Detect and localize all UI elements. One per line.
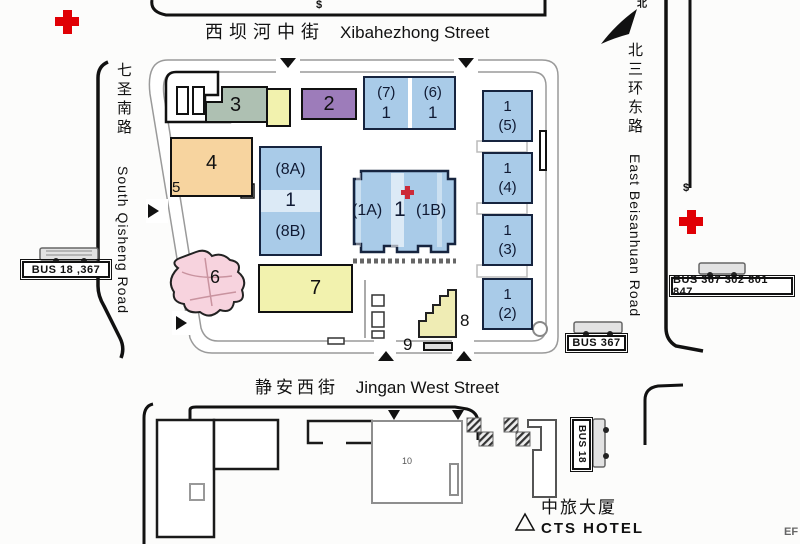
street-label-right-en: East Beisanhuan Road [628,154,642,317]
hotel-name-en: CTS HOTEL [541,521,644,536]
street-label-left-cn: 七圣南路 [116,62,131,138]
bus-stop-sign-east: BUS 367 302 801 847 [671,277,793,295]
building-2: 2 [301,88,357,120]
building-1-4: 1 (4) [482,152,533,204]
block-unit: (2) [498,305,516,322]
building-8a-8b: (8A) 1 (8B) [259,146,322,256]
south-building-a [157,420,214,537]
circle-feature [533,322,547,336]
building-3-label: 3 [230,95,241,115]
tree-icon [504,418,518,432]
building-1-5: 1 (5) [482,90,533,142]
unit-6-number: 1 [428,103,437,123]
hotel-triangle-icon [516,514,534,530]
building-10-label: 10 [402,457,412,466]
stall-bar [328,338,344,344]
red-cross-icon [679,210,703,234]
gate-bar [424,343,452,350]
unit-1b-label: (1B) [416,203,446,219]
unit-8-number: 1 [261,190,320,212]
red-cross-icon [55,10,79,34]
south-building-l [528,420,556,497]
road-east-edge [666,0,703,351]
gate-arrow-icon [452,410,464,420]
bus-icon [593,419,609,467]
building-8-label: 8 [460,312,469,329]
north-arrow-icon [601,9,637,44]
building-7-6: (7) 1 (6) 1 [363,76,456,130]
street-bottom-en: Jingan West Street [356,378,499,397]
block-number: 1 [503,160,511,177]
stall-box [372,331,384,338]
south-building-b [214,420,278,469]
building-7-label: 7 [310,277,321,300]
road-southwest-edge [144,404,153,544]
building-white-slot [177,87,188,114]
building-2-label: 2 [323,93,334,116]
building-7: 7 [258,264,353,313]
north-label: 北 [637,0,647,10]
road-top-edge [152,0,545,15]
block-unit: (4) [498,179,516,196]
building-1-2: 1 (2) [482,278,533,330]
building-4-label: 4 [206,152,217,175]
corner-mark: EF [784,527,798,538]
hotel-name-cn: 中旅大厦 [541,499,617,516]
street-label-bottom: 静安西街 Jingan West Street [255,379,499,396]
building-5-label: 5 [172,180,180,195]
south-building-10-annex [450,464,458,495]
unit-8a-label: (8A) [275,161,305,179]
block-unit: (5) [498,117,516,134]
street-label-left-en: South Qisheng Road [116,166,130,314]
street-bottom-cn: 静安西街 [255,378,339,397]
street-label-right-cn: 北三环东路 [627,42,642,137]
south-building-10 [372,421,462,503]
building-connector [477,203,527,214]
bus-stop-sign-west: BUS 18 ,367 [22,261,110,278]
dollar-icon: $ [683,183,689,194]
building-connector [477,265,527,277]
bus-stop-sign-southeast: BUS 367 [567,335,626,351]
block-number: 1 [503,222,511,239]
building-9-label: 9 [403,336,412,353]
block-number: 1 [503,286,511,303]
building-6-label: 6 [210,268,220,286]
unit-6-label: (6) [424,84,442,101]
street-top-cn: 西坝河中街 [205,22,325,42]
post-bar [540,131,546,170]
building-1-3: 1 (3) [482,214,533,266]
gate-arrow-icon [388,410,400,420]
dollar-icon: $ [316,0,322,11]
street-label-top: 西坝河中街 Xibahezhong Street [205,23,489,41]
unit-7-label: (7) [377,84,395,101]
road-southeast-edge [645,385,683,445]
stall-box [372,312,384,327]
street-top-en: Xibahezhong Street [340,23,489,42]
building-connector [477,141,527,152]
tree-icon [479,432,493,446]
building-4: 4 [170,137,253,197]
south-building-a-court [190,484,204,500]
bus-stop-sign-south: BUS 18 [572,419,591,470]
unit-8b-label: (8B) [275,223,305,241]
stall-box [372,295,384,306]
building-6-shape [171,251,244,316]
unit-1a-label: (1A) [352,203,382,219]
unit-7-number: 1 [382,103,391,123]
building-7-unit: (7) 1 [365,84,408,123]
tree-icon [516,432,530,446]
tree-icon [467,418,481,432]
block-unit: (3) [498,241,516,258]
building-1-number: 1 [394,199,406,220]
building-6-unit: (6) 1 [412,84,455,123]
south-building-bracket [308,421,373,443]
market-street-map: 3 2 (7) 1 (6) 1 4 5 (8A) 1 (8B) (1A) 1 (… [0,0,800,544]
block-number: 1 [503,98,511,115]
building-yellow-annex [266,88,291,127]
building-white-slot [193,87,204,114]
